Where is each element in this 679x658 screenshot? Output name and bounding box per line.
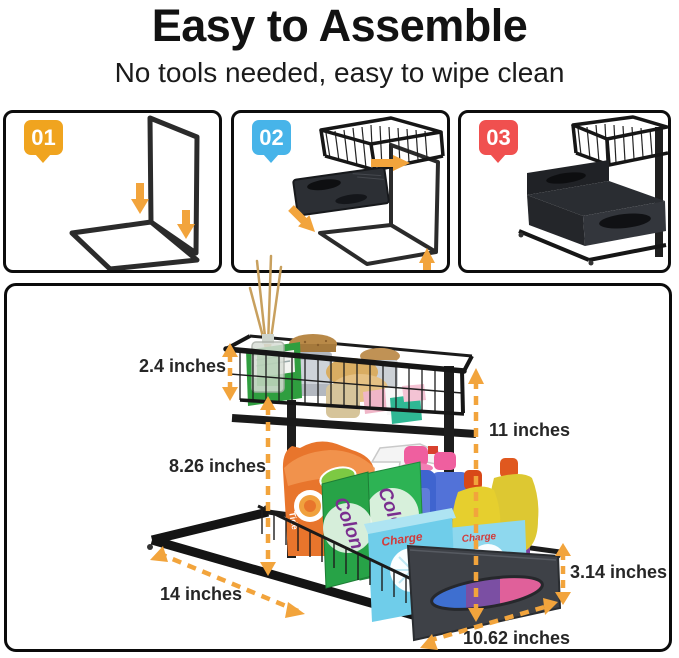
step-1-badge: 01 (24, 120, 63, 155)
product-dimensions-panel (4, 283, 672, 652)
drawer-height-label: 3.14 inches (570, 562, 667, 583)
frame-parts (72, 118, 197, 269)
step-3-badge: 03 (479, 120, 518, 155)
step-3-number: 03 (486, 125, 510, 151)
assembly-step-3-panel: 03 (458, 110, 671, 273)
assembly-step-1-panel: 01 (3, 110, 222, 273)
middle-height-label: 8.26 inches (154, 456, 266, 477)
assembly-step-2-panel: 02 (231, 110, 450, 273)
assembled-unit (519, 117, 669, 266)
step-2-number: 02 (259, 125, 283, 151)
drawer-tray (293, 167, 389, 215)
page-subtitle: No tools needed, easy to wipe clean (0, 57, 679, 89)
rail-length-label: 14 inches (160, 584, 242, 605)
drawer-width-label: 10.62 inches (463, 628, 570, 649)
step-2-badge: 02 (252, 120, 291, 155)
page-title: Easy to Assemble (0, 0, 679, 52)
total-height-label: 11 inches (489, 420, 570, 441)
step-1-number: 01 (31, 125, 55, 151)
basket-height-label: 2.4 inches (116, 356, 226, 377)
